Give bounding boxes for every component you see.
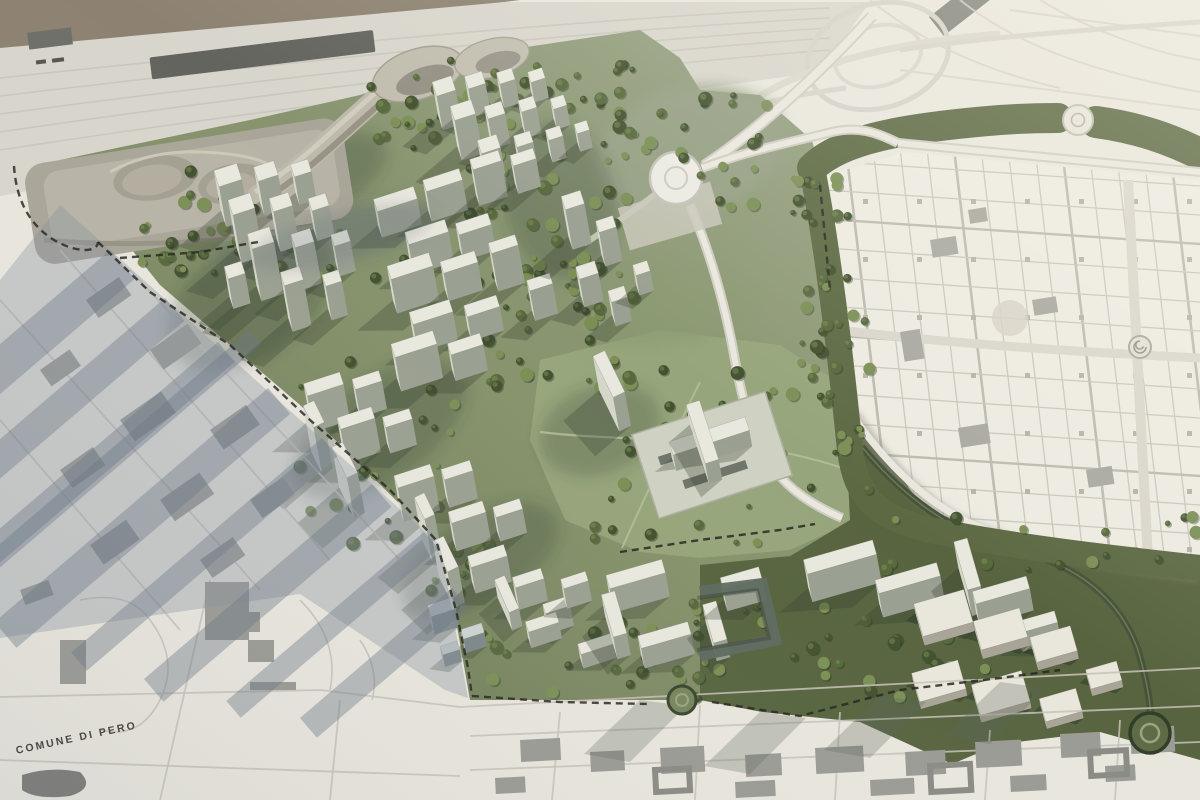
tree-highlight [791, 211, 793, 213]
tree-highlight [547, 220, 553, 226]
tree-highlight [503, 651, 507, 655]
tree-highlight [833, 450, 836, 453]
tree-highlight [823, 321, 828, 326]
tree-highlight [690, 600, 694, 604]
tree-highlight [770, 388, 773, 391]
tree-highlight [587, 378, 589, 380]
tree-highlight [808, 643, 814, 649]
town-block [495, 776, 526, 794]
town-block [520, 738, 561, 762]
grid-node [917, 257, 922, 262]
tree-highlight [831, 363, 836, 368]
tree-highlight [569, 270, 574, 275]
tree-highlight [865, 364, 871, 370]
tree-highlight [923, 651, 929, 657]
grid-node [1079, 315, 1084, 320]
tree-highlight [800, 341, 802, 343]
tree-highlight [614, 122, 620, 128]
grid-node [917, 315, 922, 320]
town-block [248, 640, 274, 662]
tree-highlight [694, 620, 697, 623]
grid-node [1187, 547, 1192, 552]
grid-node [1187, 373, 1192, 378]
tree-highlight [1088, 558, 1093, 563]
grid-node [917, 199, 922, 204]
grid-node [971, 373, 976, 378]
tree-highlight [619, 479, 625, 485]
tree-highlight [405, 122, 407, 124]
tree-highlight [819, 282, 822, 285]
tree-highlight [615, 88, 620, 93]
tree-highlight [586, 318, 592, 324]
tree-highlight [1155, 556, 1159, 560]
tree-highlight [381, 132, 386, 137]
tree-highlight [400, 256, 404, 260]
tree-highlight [522, 370, 528, 376]
tree-highlight [590, 198, 596, 204]
tree-highlight [680, 154, 685, 159]
tree-highlight [460, 572, 463, 575]
tree-highlight [818, 394, 821, 397]
tree-highlight [646, 530, 652, 536]
tree-highlight [434, 463, 437, 466]
tree-highlight [866, 686, 871, 691]
tree-highlight [812, 365, 816, 369]
tree-highlight [716, 197, 720, 201]
tree-highlight [865, 486, 870, 491]
tree-highlight [406, 97, 412, 103]
tree-highlight [1188, 513, 1193, 518]
tree-highlight [1020, 526, 1024, 530]
grid-node [971, 489, 976, 494]
tree-highlight [627, 681, 631, 685]
tree-highlight [893, 517, 896, 520]
grid-node [1079, 431, 1084, 436]
grid-node [917, 431, 922, 436]
tree-highlight [695, 521, 700, 526]
tree-highlight [787, 389, 793, 395]
grid-plaza [992, 300, 1028, 336]
tree-highlight [581, 97, 584, 100]
tree-highlight [646, 138, 652, 144]
grid-node [1079, 257, 1084, 262]
tree-highlight [754, 539, 758, 543]
town-block [870, 778, 915, 796]
tree-highlight [809, 374, 813, 378]
grid-node [1187, 489, 1192, 494]
grid-node [1187, 199, 1192, 204]
tree-highlight [844, 275, 848, 279]
tree-highlight [374, 135, 379, 140]
tree-highlight [414, 75, 417, 78]
tree-highlight [981, 665, 986, 670]
tree-highlight [493, 382, 498, 387]
tree-highlight [862, 318, 866, 322]
tree-highlight [660, 366, 665, 371]
tree-highlight [504, 305, 507, 308]
tree-highlight [574, 73, 577, 76]
tree-highlight [534, 63, 538, 67]
tree-highlight [371, 274, 376, 279]
tree-highlight [803, 211, 808, 216]
tree-highlight [677, 148, 682, 153]
tree-highlight [616, 271, 619, 274]
masterplan-scene [0, 0, 1200, 800]
tree-highlight [859, 432, 862, 435]
tree-highlight [681, 124, 685, 128]
tree-highlight [812, 341, 818, 347]
tree-highlight [881, 565, 887, 571]
tree-highlight [517, 358, 520, 361]
tree-highlight [849, 311, 854, 316]
tree-highlight [888, 560, 893, 565]
tree-highlight [698, 172, 702, 176]
tree-highlight [630, 67, 633, 70]
roundabout-belt [1063, 105, 1093, 135]
tree-highlight [1056, 561, 1060, 565]
tree-highlight [731, 93, 734, 96]
tree-highlight [377, 101, 383, 107]
tree-highlight [756, 134, 760, 138]
grid-node [971, 257, 976, 262]
tree-highlight [727, 203, 731, 207]
tree-highlight [486, 635, 489, 638]
grid-node [1025, 431, 1030, 436]
tree-highlight [199, 199, 205, 205]
grid-node [1025, 257, 1030, 262]
tree-highlight [496, 351, 500, 355]
tree-highlight [521, 78, 526, 83]
tree-highlight [614, 68, 618, 72]
tree-highlight [749, 139, 754, 144]
roundabout-main [650, 152, 702, 204]
tree-highlight [657, 111, 660, 114]
grid-node [863, 257, 868, 262]
grid-block [968, 207, 988, 224]
tree-highlight [666, 403, 671, 408]
tree-highlight [451, 401, 456, 406]
tree-highlight [187, 252, 191, 256]
tree-highlight [630, 629, 635, 634]
tree-highlight [808, 485, 812, 489]
tree-highlight [187, 192, 191, 196]
tree-highlight [616, 111, 621, 116]
tree-highlight [857, 427, 860, 430]
tree-highlight [609, 526, 613, 530]
tree-highlight [605, 158, 608, 161]
grid-node [1187, 315, 1192, 320]
tree-highlight [299, 385, 301, 387]
tree-highlight [794, 196, 799, 201]
tree-highlight [751, 166, 754, 169]
tree-highlight [427, 120, 431, 124]
tree-highlight [552, 237, 557, 242]
tree-highlight [802, 303, 808, 309]
tree-highlight [544, 371, 549, 376]
tree-highlight [604, 187, 610, 193]
sports-field [22, 770, 86, 798]
tree-highlight [448, 58, 451, 61]
tree-highlight [795, 177, 800, 182]
tree-highlight [719, 163, 723, 167]
tree-highlight [432, 425, 435, 428]
tree-highlight [601, 142, 604, 145]
tree-highlight [596, 94, 602, 100]
tree-highlight [616, 61, 621, 66]
tree-highlight [748, 199, 754, 205]
tree-highlight [729, 101, 733, 105]
town-block [735, 780, 776, 798]
tree-highlight [623, 437, 626, 440]
tree-highlight [932, 660, 938, 666]
tree-highlight [531, 256, 534, 259]
tree-highlight [622, 194, 627, 199]
tree-highlight [491, 642, 497, 648]
grid-node [1025, 199, 1030, 204]
tree-highlight [845, 213, 849, 217]
masterplan-rendering: COMUNE DI PERO [0, 0, 1200, 800]
tree-highlight [839, 443, 845, 449]
tree-highlight [838, 432, 842, 436]
tree-highlight [819, 328, 823, 332]
tree-highlight [487, 379, 490, 382]
tree-highlight [694, 673, 700, 679]
tree-highlight [895, 693, 900, 698]
tree-highlight [647, 625, 652, 630]
tree-highlight [140, 225, 144, 229]
grid-node [971, 315, 976, 320]
tree-highlight [823, 284, 827, 288]
grid-node [1025, 373, 1030, 378]
tree-highlight [791, 654, 795, 658]
tree-highlight [731, 178, 735, 182]
grid-node [1187, 257, 1192, 262]
tree-highlight [624, 372, 630, 378]
tree-highlight [548, 688, 553, 693]
tree-highlight [700, 93, 706, 99]
tree-highlight [557, 80, 563, 86]
tree-highlight [611, 357, 615, 361]
grid-node [971, 199, 976, 204]
tree-highlight [811, 180, 815, 184]
tree-highlight [865, 676, 871, 682]
tree-highlight [181, 267, 184, 270]
tree-highlight [889, 638, 895, 644]
tree-highlight [622, 153, 625, 156]
tree-highlight [845, 341, 849, 345]
grid-node [1079, 373, 1084, 378]
tree-highlight [548, 175, 553, 180]
tree-highlight [528, 220, 534, 226]
tree-highlight [418, 124, 422, 128]
tree-highlight [1026, 567, 1029, 570]
grid-node [1079, 199, 1084, 204]
tree-highlight [832, 211, 838, 217]
tree-highlight [491, 69, 495, 73]
tree-highlight [825, 634, 828, 637]
grid-node [1025, 489, 1030, 494]
tree-highlight [346, 358, 351, 363]
tree-highlight [734, 540, 737, 543]
tree-highlight [822, 672, 826, 676]
tree-highlight [823, 398, 828, 403]
tree-highlight [1182, 514, 1186, 518]
tree-highlight [1103, 553, 1106, 556]
tree-highlight [1102, 529, 1106, 533]
tree-highlight [591, 535, 595, 539]
tree-highlight [391, 118, 396, 123]
tree-highlight [732, 368, 738, 374]
tree-highlight [626, 447, 631, 452]
tree-highlight [1166, 521, 1169, 524]
tree-highlight [798, 360, 802, 364]
tree-highlight [952, 513, 958, 519]
tree-highlight [447, 429, 450, 432]
tree-highlight [981, 558, 987, 564]
tree-highlight [804, 287, 809, 292]
town-block [975, 740, 1022, 768]
tree-highlight [420, 416, 424, 420]
tree-highlight [820, 275, 824, 279]
tree-highlight [139, 259, 143, 263]
tree-highlight [517, 311, 522, 316]
tree-highlight [835, 320, 839, 324]
roundabout-field [1130, 713, 1170, 753]
tree-highlight [368, 83, 372, 87]
tree-highlight [763, 101, 768, 106]
tree-highlight [168, 242, 171, 245]
tree-highlight [625, 128, 630, 133]
roundabout-south [668, 686, 696, 714]
tree-highlight [1191, 527, 1197, 533]
tree-highlight [591, 523, 596, 528]
grid-node [863, 199, 868, 204]
tree-highlight [609, 496, 612, 499]
grid-node [1187, 431, 1192, 436]
tree-highlight [488, 675, 494, 681]
tree-highlight [819, 658, 825, 664]
tree-highlight [747, 504, 749, 506]
tree-highlight [180, 197, 186, 203]
tree-highlight [836, 660, 840, 664]
tree-highlight [792, 176, 795, 179]
town-block [1010, 774, 1047, 792]
tree-highlight [565, 662, 569, 666]
grid-node [1133, 489, 1138, 494]
tree-highlight [826, 391, 830, 395]
tree-highlight [832, 174, 838, 180]
tree-highlight [186, 167, 191, 172]
spiral-plaza [1129, 336, 1151, 358]
tree-highlight [833, 181, 838, 186]
grid-node [917, 373, 922, 378]
grid-node [1079, 489, 1084, 494]
